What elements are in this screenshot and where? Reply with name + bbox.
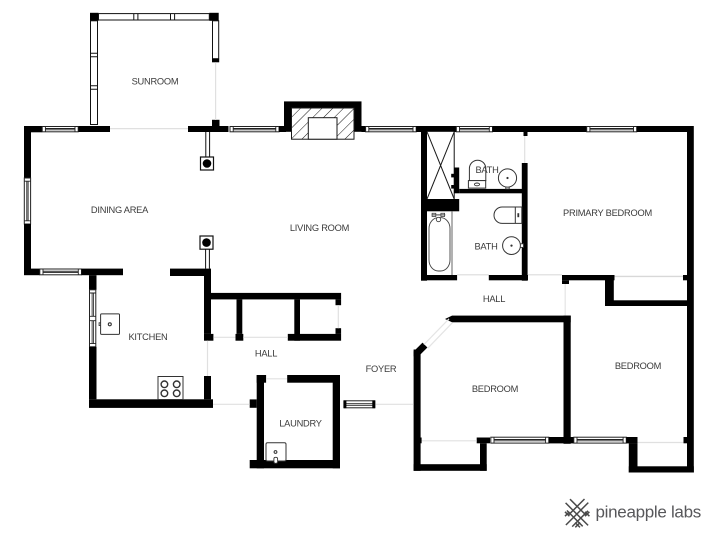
svg-text:LAUNDRY: LAUNDRY bbox=[279, 419, 322, 429]
svg-text:BEDROOM: BEDROOM bbox=[615, 361, 661, 371]
svg-text:LIVING ROOM: LIVING ROOM bbox=[290, 223, 349, 233]
svg-text:HALL: HALL bbox=[483, 294, 505, 304]
svg-text:PRIMARY BEDROOM: PRIMARY BEDROOM bbox=[563, 208, 652, 218]
svg-text:BATH: BATH bbox=[475, 165, 498, 175]
svg-text:FOYER: FOYER bbox=[366, 364, 397, 374]
svg-text:DINING AREA: DINING AREA bbox=[91, 205, 149, 215]
svg-text:BEDROOM: BEDROOM bbox=[472, 384, 518, 394]
svg-text:SUNROOM: SUNROOM bbox=[132, 77, 179, 87]
svg-text:KITCHEN: KITCHEN bbox=[128, 332, 167, 342]
svg-text:pineapple labs: pineapple labs bbox=[596, 503, 701, 522]
svg-text:BATH: BATH bbox=[474, 242, 497, 252]
svg-text:HALL: HALL bbox=[255, 349, 277, 359]
